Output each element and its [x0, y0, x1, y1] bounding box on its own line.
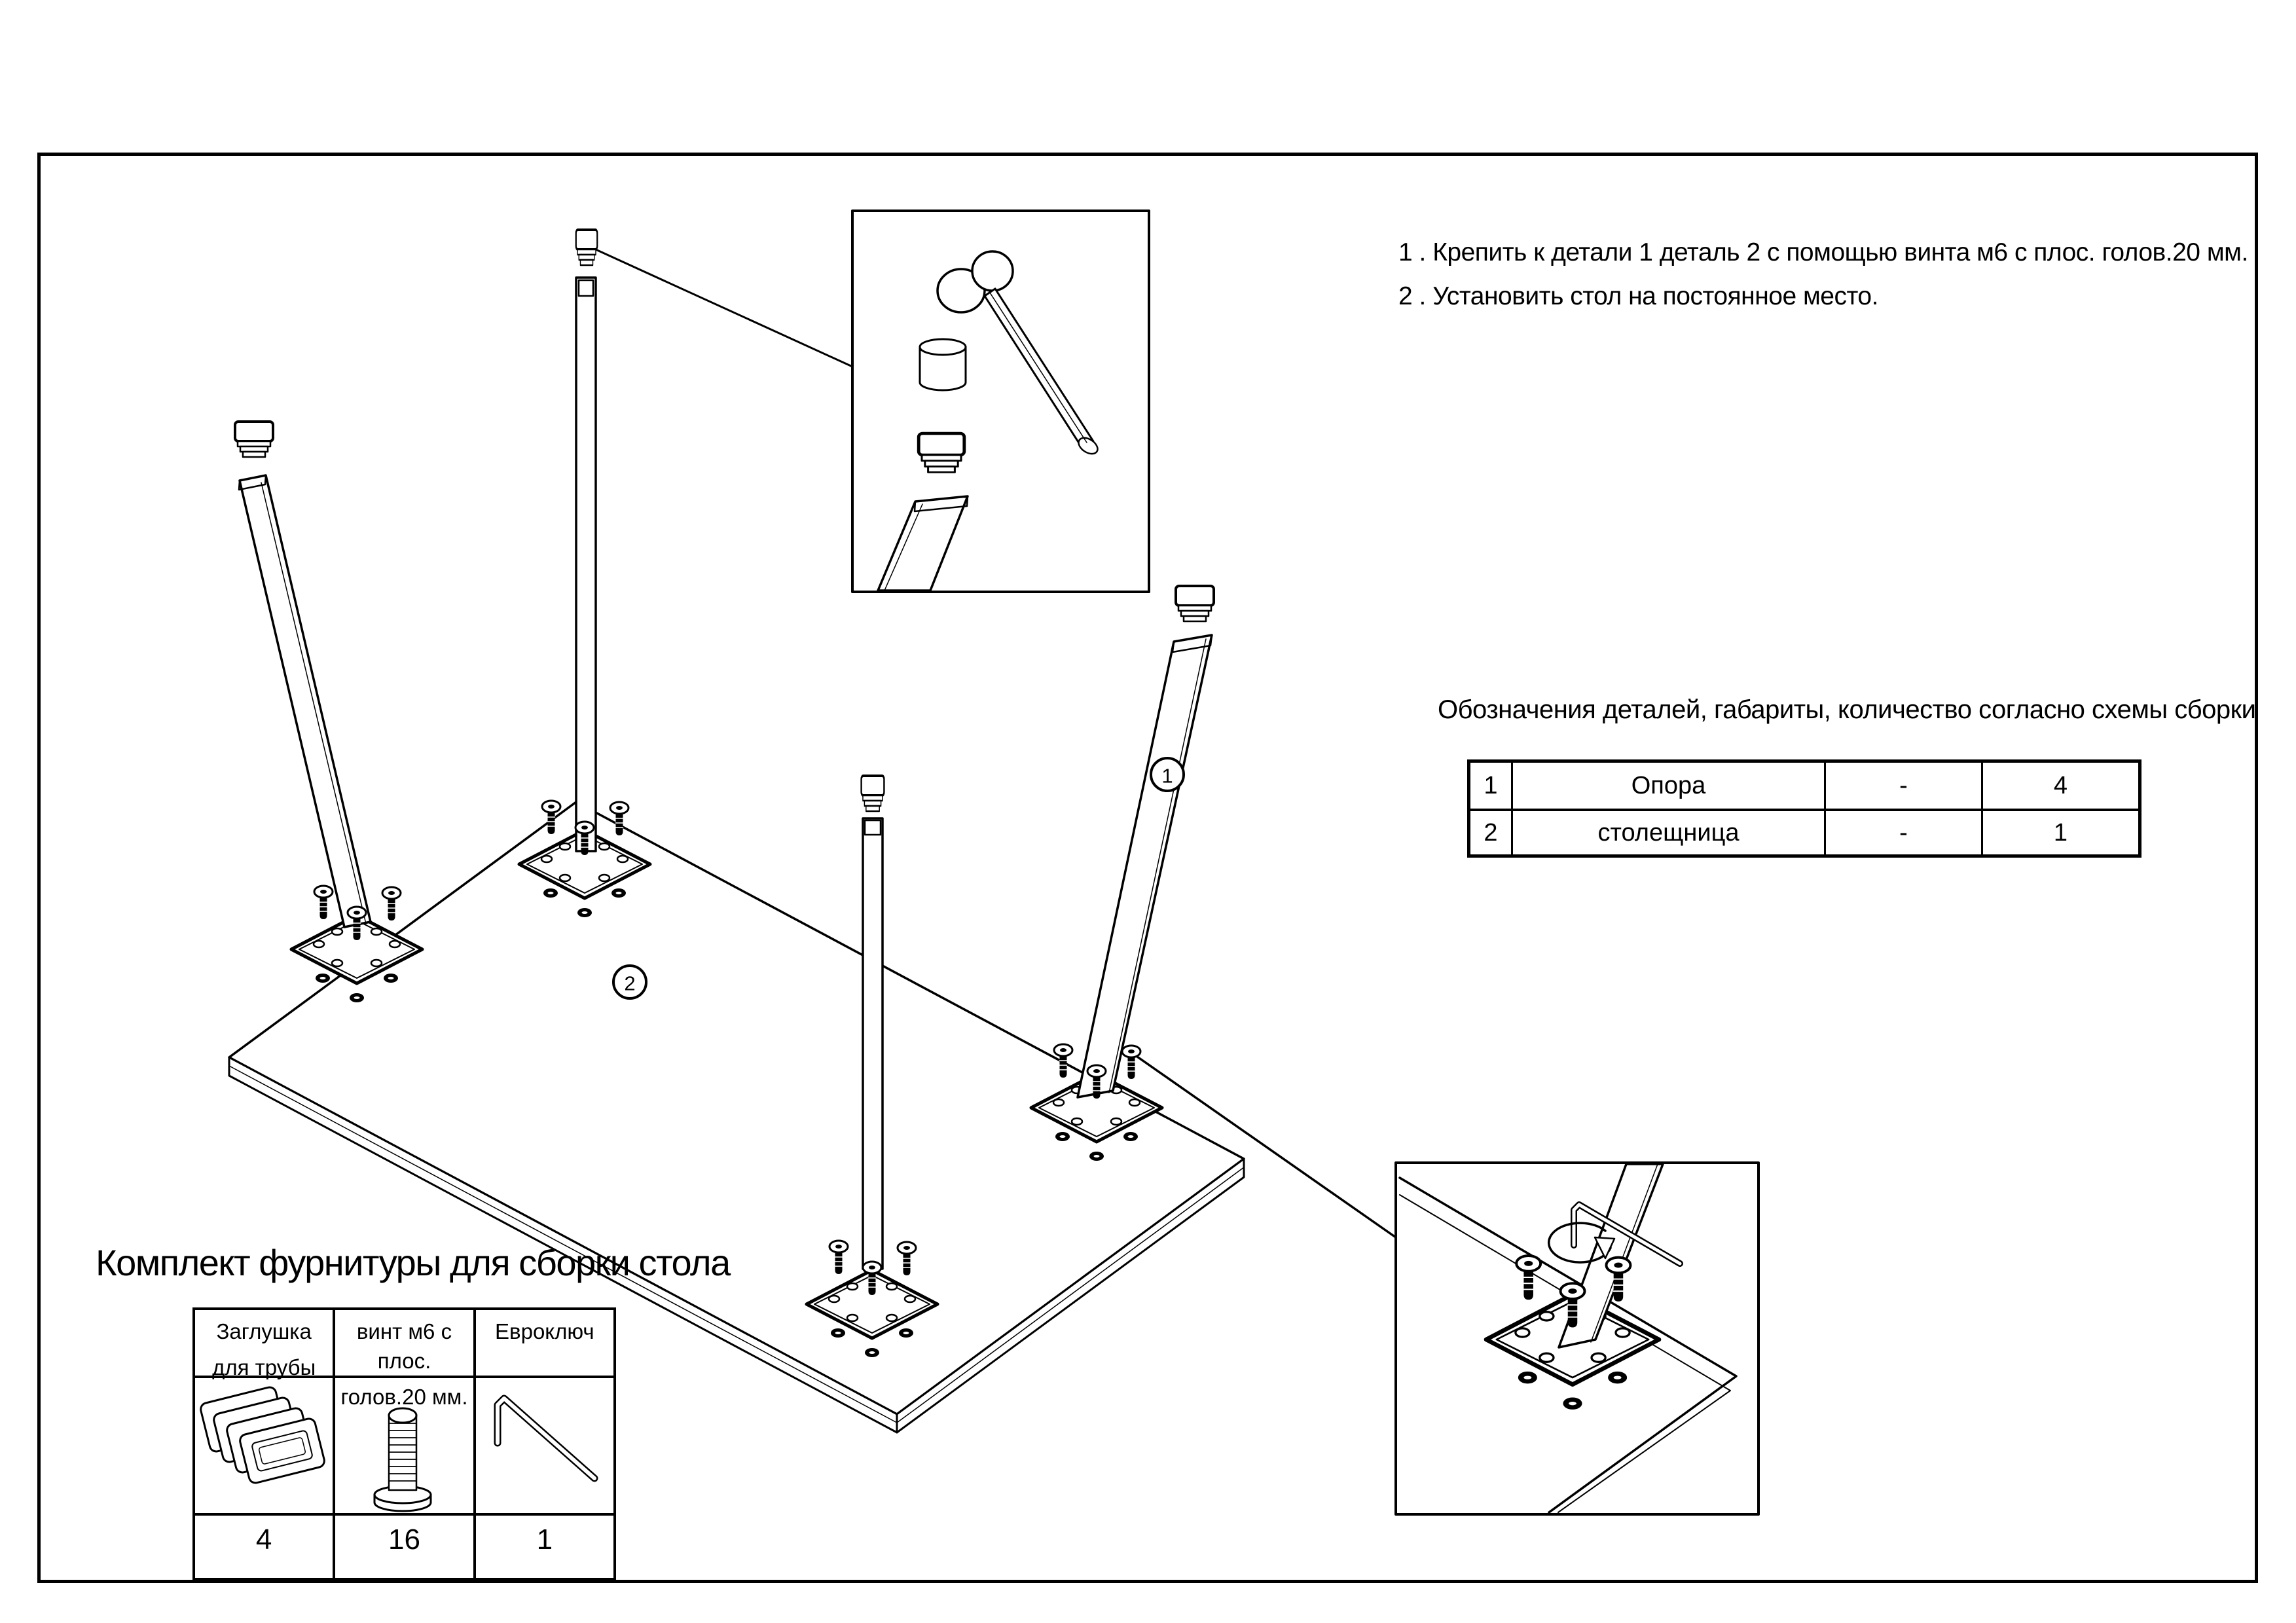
table-row: Заглушка для трубы винт м6 с плос. голов…: [195, 1310, 613, 1376]
table-row: [195, 1376, 613, 1513]
part-number: 1: [1470, 763, 1511, 809]
drawing-sheet: 1 2 1 . Крепить к детали 1 деталь 2 с по…: [0, 0, 2296, 1623]
hardware-image-cell-pipe-cap: [195, 1378, 333, 1513]
hardware-label: Евроключ: [495, 1317, 594, 1346]
cap-sleeve-icon: [920, 339, 966, 390]
hardware-quantity: 4: [256, 1523, 272, 1556]
instruction-line-2: 2 . Установить стол на постоянное место.: [1398, 274, 2248, 318]
hardware-kit-table: Заглушка для трубы винт м6 с плос. голов…: [192, 1307, 616, 1580]
hardware-quantity: 1: [537, 1523, 553, 1556]
hardware-label: винт м6 с плос.: [335, 1317, 473, 1376]
callout-number: 2: [624, 972, 635, 995]
callout-number: 1: [1161, 765, 1173, 788]
detail-box-cap-installation: [852, 211, 1149, 592]
part-name: столещница: [1511, 811, 1824, 854]
table-leg-back-left: [235, 422, 371, 927]
pipe-cap: [235, 422, 273, 457]
table-row: 4 16 1: [195, 1513, 613, 1578]
hardware-label-cell: Заглушка для трубы: [195, 1310, 333, 1376]
hardware-label-cell: винт м6 с плос. голов.20 мм.: [333, 1310, 473, 1376]
part-dimensions: -: [1824, 811, 1981, 854]
hardware-image-cell-screw: [333, 1378, 473, 1513]
table-row: 1 Опора - 4: [1470, 763, 2138, 809]
part-quantity: 4: [1981, 763, 2138, 809]
detail-box-screw-fastening: [1396, 1163, 1758, 1514]
hardware-kit-title: Комплект фурнитуры для сборки стола: [96, 1241, 730, 1284]
hardware-quantity: 16: [388, 1523, 420, 1556]
part-number: 2: [1470, 811, 1511, 854]
table-leg-right: [1078, 586, 1214, 1097]
hardware-image-cell-hex-key: [473, 1378, 613, 1513]
pipe-cap: [862, 776, 884, 811]
hardware-label-cell: Евроключ: [473, 1310, 613, 1376]
instruction-line-1: 1 . Крепить к детали 1 деталь 2 с помощь…: [1398, 230, 2248, 274]
parts-table: 1 Опора - 4 2 столещница - 1: [1467, 759, 2141, 858]
callout-support-leg: 1: [1151, 758, 1184, 791]
table-row: 2 столещница - 1: [1470, 809, 2138, 854]
pipe-cap: [1176, 586, 1214, 621]
assembly-instructions: 1 . Крепить к детали 1 деталь 2 с помощь…: [1398, 230, 2248, 318]
part-name: Опора: [1511, 763, 1824, 809]
table-leg-front-middle: [862, 776, 884, 1269]
pipe-cap: [919, 433, 964, 472]
parts-table-title: Обозначения деталей, габариты, количеств…: [1438, 695, 2255, 725]
callout-tabletop: 2: [613, 966, 646, 998]
part-quantity: 1: [1981, 811, 2138, 854]
pipe-cap: [576, 230, 597, 265]
leader-line-cap-detail: [597, 250, 852, 367]
part-dimensions: -: [1824, 763, 1981, 809]
table-leg-back-right: [576, 230, 597, 851]
hardware-label: Заглушка: [216, 1317, 311, 1346]
